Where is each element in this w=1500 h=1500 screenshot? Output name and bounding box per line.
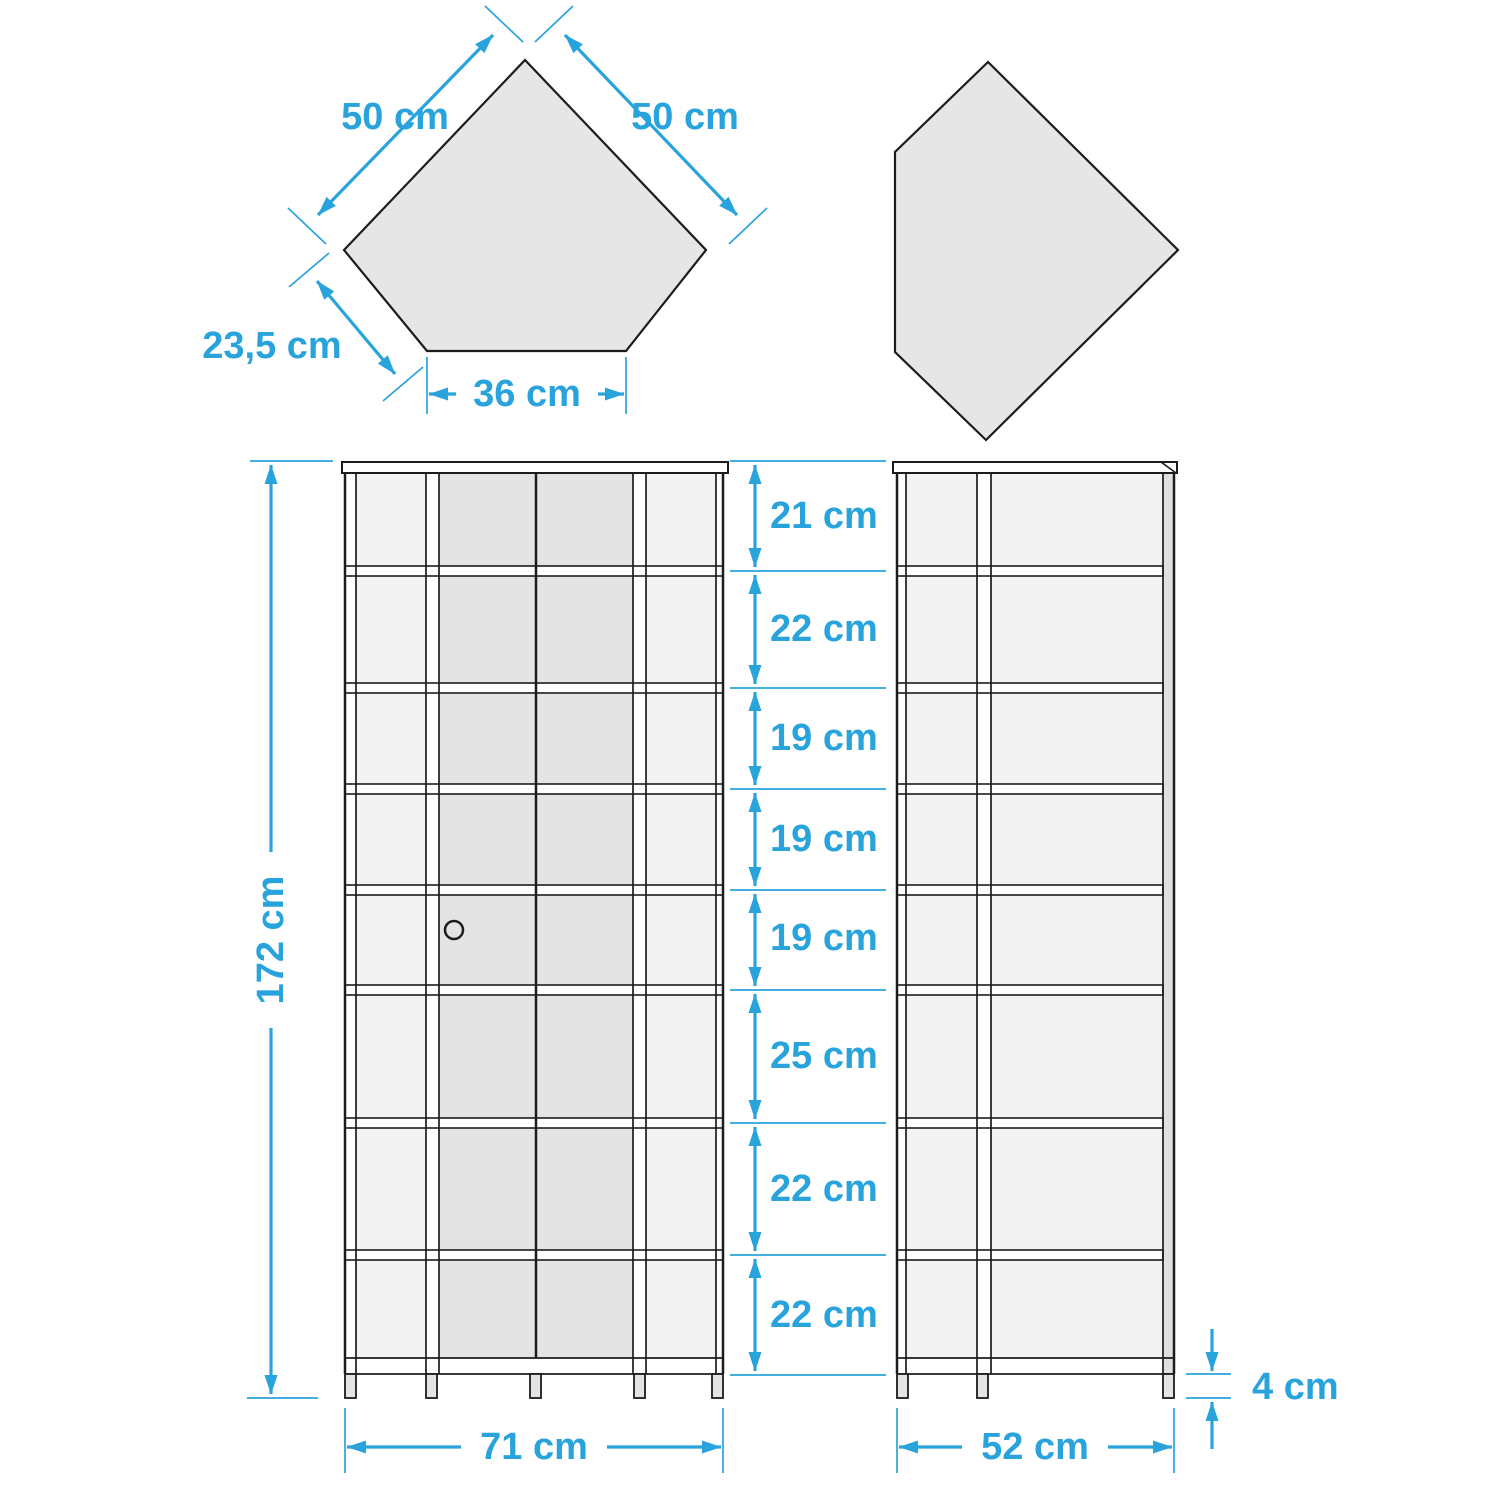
cabinet-foot xyxy=(530,1374,541,1398)
shelf-spacing-label: 22 cm xyxy=(770,1168,878,1210)
feet-height-label: 4 cm xyxy=(1252,1366,1339,1408)
dim-feet-height-4: 4 cm xyxy=(1186,1329,1339,1449)
edge-right-label: 50 cm xyxy=(631,96,739,138)
cabinet-foot xyxy=(977,1374,988,1398)
shelf-line xyxy=(897,985,1163,995)
side-edge-stile xyxy=(1163,473,1174,1374)
front-width-label: 71 cm xyxy=(480,1426,588,1468)
shelf-line xyxy=(897,566,1163,576)
shelf-line xyxy=(897,784,1163,794)
cabinet-foot xyxy=(426,1374,437,1398)
edge-left-label: 50 cm xyxy=(341,96,449,138)
drawing-svg: 50 cm 50 cm 23,5 cm 36 cm xyxy=(0,0,1500,1500)
cabinet-foot xyxy=(897,1374,908,1398)
shelf-spacing-label: 22 cm xyxy=(770,1294,878,1336)
shelf-spacing-label: 25 cm xyxy=(770,1035,878,1077)
dim-width-71: 71 cm xyxy=(345,1408,723,1473)
cabinet-front-view xyxy=(342,462,728,1398)
corner-shelf-top-view-rotated xyxy=(895,62,1178,440)
cabinet-foot xyxy=(1163,1374,1174,1398)
shelf-spacing-label: 21 cm xyxy=(770,495,878,537)
shelf-line xyxy=(897,1250,1163,1260)
side-left-column xyxy=(906,473,977,1358)
cabinet-foot xyxy=(712,1374,723,1398)
shelf-line xyxy=(345,784,723,794)
front-left-column xyxy=(356,473,426,1358)
shelf-spacing-label: 22 cm xyxy=(770,608,878,650)
front-door-panel-right xyxy=(536,473,633,1358)
corner-shelf-top-view: 50 cm 50 cm 23,5 cm 36 cm xyxy=(202,6,767,415)
shelf-line xyxy=(345,1250,723,1260)
corner-shelf-top-outline-rotated xyxy=(895,62,1178,440)
side-top-plate xyxy=(893,462,1177,473)
side-right-column xyxy=(991,473,1163,1358)
shelf-spacing-label: 19 cm xyxy=(770,818,878,860)
shelf-line xyxy=(345,985,723,995)
front-right-column xyxy=(646,473,716,1358)
shelf-line xyxy=(345,1118,723,1128)
edge-lower-left-label: 23,5 cm xyxy=(202,325,341,367)
shelf-spacing-label: 19 cm xyxy=(770,917,878,959)
dim-width-52: 52 cm xyxy=(897,1408,1174,1473)
shelf-spacing-label: 19 cm xyxy=(770,717,878,759)
cabinet-foot xyxy=(345,1374,356,1398)
front-top-plate xyxy=(342,462,728,473)
cabinet-side-view xyxy=(893,462,1177,1398)
bottom-edge-label: 36 cm xyxy=(473,373,581,415)
cabinet-foot xyxy=(634,1374,645,1398)
shelf-line xyxy=(897,1118,1163,1128)
side-width-label: 52 cm xyxy=(981,1426,1089,1468)
shelf-line xyxy=(345,885,723,895)
height-label: 172 cm xyxy=(250,876,292,1005)
furniture-dimension-drawing: 50 cm 50 cm 23,5 cm 36 cm xyxy=(0,0,1500,1500)
dim-height-172: 172 cm xyxy=(245,461,333,1398)
shelf-line xyxy=(897,683,1163,693)
dim-shelf-stack: 21 cm 22 cm 19 cm 19 cm 19 cm 25 cm 22 c… xyxy=(730,461,886,1375)
front-door-panel-left xyxy=(439,473,536,1358)
shelf-line xyxy=(345,566,723,576)
shelf-line xyxy=(897,885,1163,895)
shelf-line xyxy=(345,683,723,693)
dim-bottom-edge-36: 36 cm xyxy=(427,357,626,415)
